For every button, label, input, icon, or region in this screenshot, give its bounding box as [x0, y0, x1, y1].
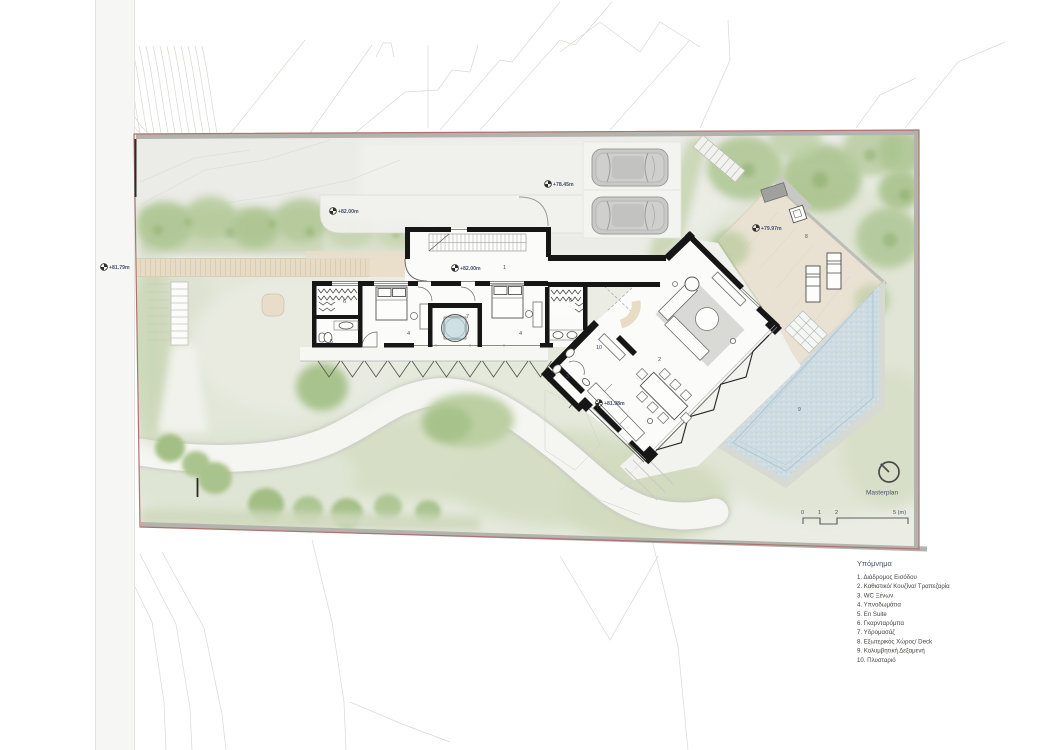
svg-text:2. Καθιστικό/ Κουζίνα/ Τραπεζα: 2. Καθιστικό/ Κουζίνα/ Τραπεζαρία	[857, 583, 950, 590]
svg-text:5. En Suite: 5. En Suite	[857, 611, 887, 618]
svg-text:1: 1	[818, 510, 821, 516]
svg-text:7. Υδρομασάζ: 7. Υδρομασάζ	[857, 629, 895, 636]
svg-text:+78.45m: +78.45m	[553, 182, 574, 188]
svg-text:3: 3	[566, 374, 569, 380]
svg-text:1. Διάδρομος Εισόδου: 1. Διάδρομος Εισόδου	[857, 574, 918, 581]
svg-text:9. Κολυμβητική Δεξαμενή: 9. Κολυμβητική Δεξαμενή	[857, 648, 925, 655]
svg-text:6: 6	[569, 298, 572, 304]
svg-text:3. WC Ξένων: 3. WC Ξένων	[857, 592, 893, 599]
svg-text:9: 9	[798, 407, 801, 413]
svg-text:2: 2	[658, 357, 661, 363]
svg-text:+82.00m: +82.00m	[460, 266, 481, 272]
svg-text:7: 7	[466, 314, 469, 320]
svg-text:5: 5	[330, 339, 333, 345]
svg-text:+79.97m: +79.97m	[761, 226, 782, 232]
svg-text:+81.98m: +81.98m	[604, 401, 625, 407]
svg-text:8. Εξωτερικός Χώρος/ Deck: 8. Εξωτερικός Χώρος/ Deck	[857, 638, 933, 645]
svg-text:+82.00m: +82.00m	[338, 209, 359, 215]
svg-text:6: 6	[343, 299, 346, 305]
svg-text:5 (m): 5 (m)	[893, 510, 906, 516]
svg-text:4: 4	[519, 331, 522, 337]
svg-text:+81.79m: +81.79m	[109, 265, 130, 271]
svg-text:4. Υπνοδωμάτια: 4. Υπνοδωμάτια	[857, 602, 901, 609]
svg-text:6. Γκαρνταρόμπα: 6. Γκαρνταρόμπα	[857, 620, 904, 627]
svg-text:1: 1	[503, 265, 506, 271]
svg-text:8: 8	[805, 234, 808, 240]
svg-text:10: 10	[596, 345, 602, 351]
svg-text:10. Πλυσταριό: 10. Πλυσταριό	[857, 657, 896, 664]
svg-text:0: 0	[801, 510, 804, 516]
svg-text:Υπόμνημα: Υπόμνημα	[857, 559, 892, 568]
svg-text:2: 2	[835, 510, 838, 516]
svg-text:Masterplan: Masterplan	[866, 490, 899, 497]
svg-text:4: 4	[407, 331, 410, 337]
